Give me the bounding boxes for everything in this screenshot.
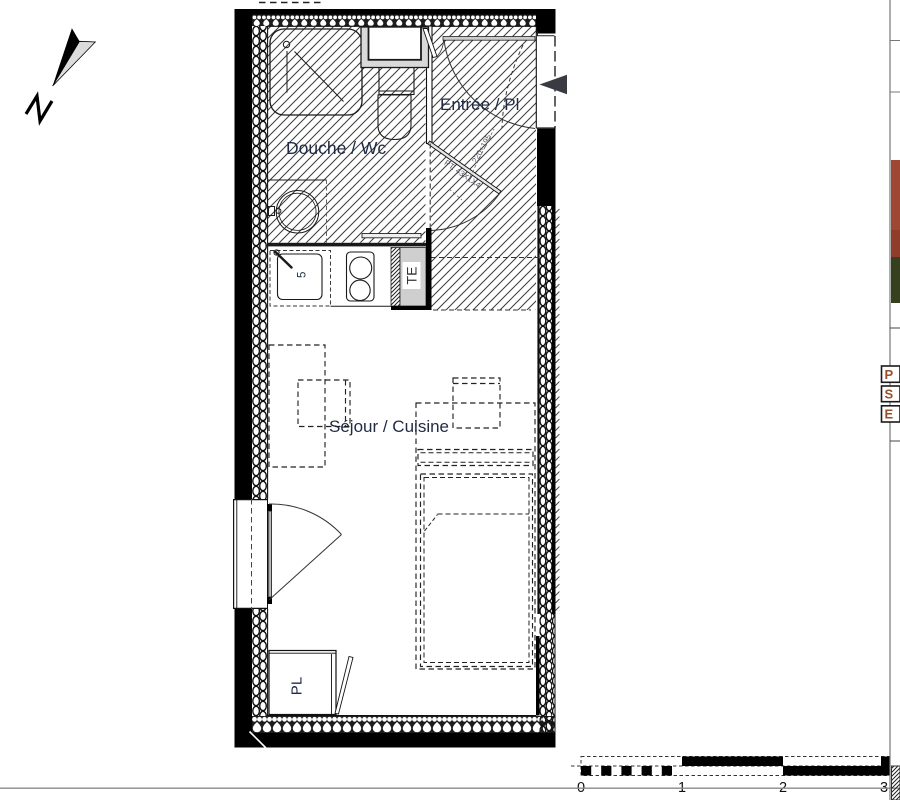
svg-text:TE: TE [404,267,420,285]
svg-text:PL: PL [289,677,306,695]
svg-text:Entrée / Pl: Entrée / Pl [440,95,519,114]
svg-text:5: 5 [296,272,308,278]
svg-text:Douche / Wc: Douche / Wc [286,138,386,158]
svg-text:S: S [885,387,894,402]
svg-text:E: E [885,407,894,422]
svg-text:P: P [885,367,894,382]
